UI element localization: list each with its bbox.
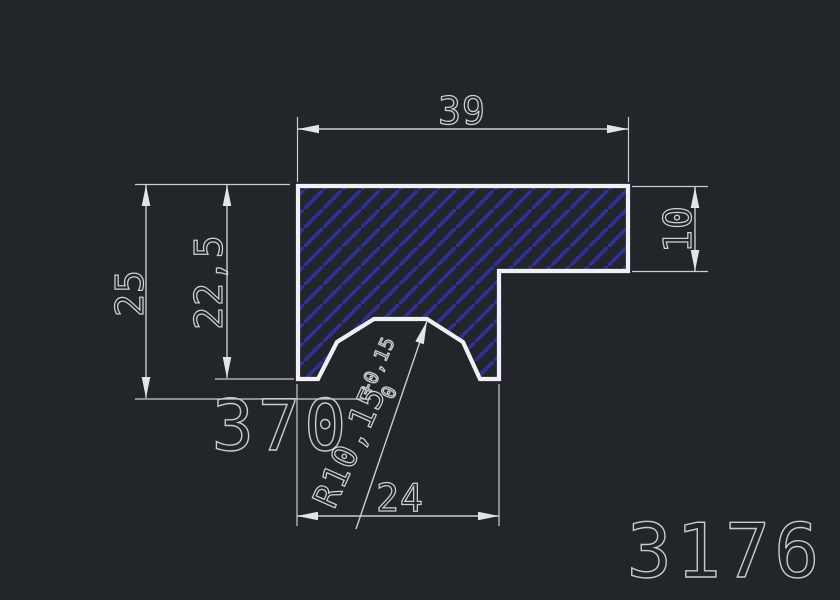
cad-drawing: 370 39 25 22,5 10 (0, 0, 840, 600)
dim-text-overall-height: 25 (108, 269, 152, 317)
dim-text-step-height: 10 (656, 205, 700, 253)
part-number: 3176 (627, 507, 824, 595)
dim-text-groove-width: 24 (376, 476, 424, 520)
cad-viewport: 370 39 25 22,5 10 (0, 0, 840, 600)
dim-text-top-width: 39 (438, 89, 486, 133)
dim-text-profile-height: 22,5 (187, 234, 231, 330)
